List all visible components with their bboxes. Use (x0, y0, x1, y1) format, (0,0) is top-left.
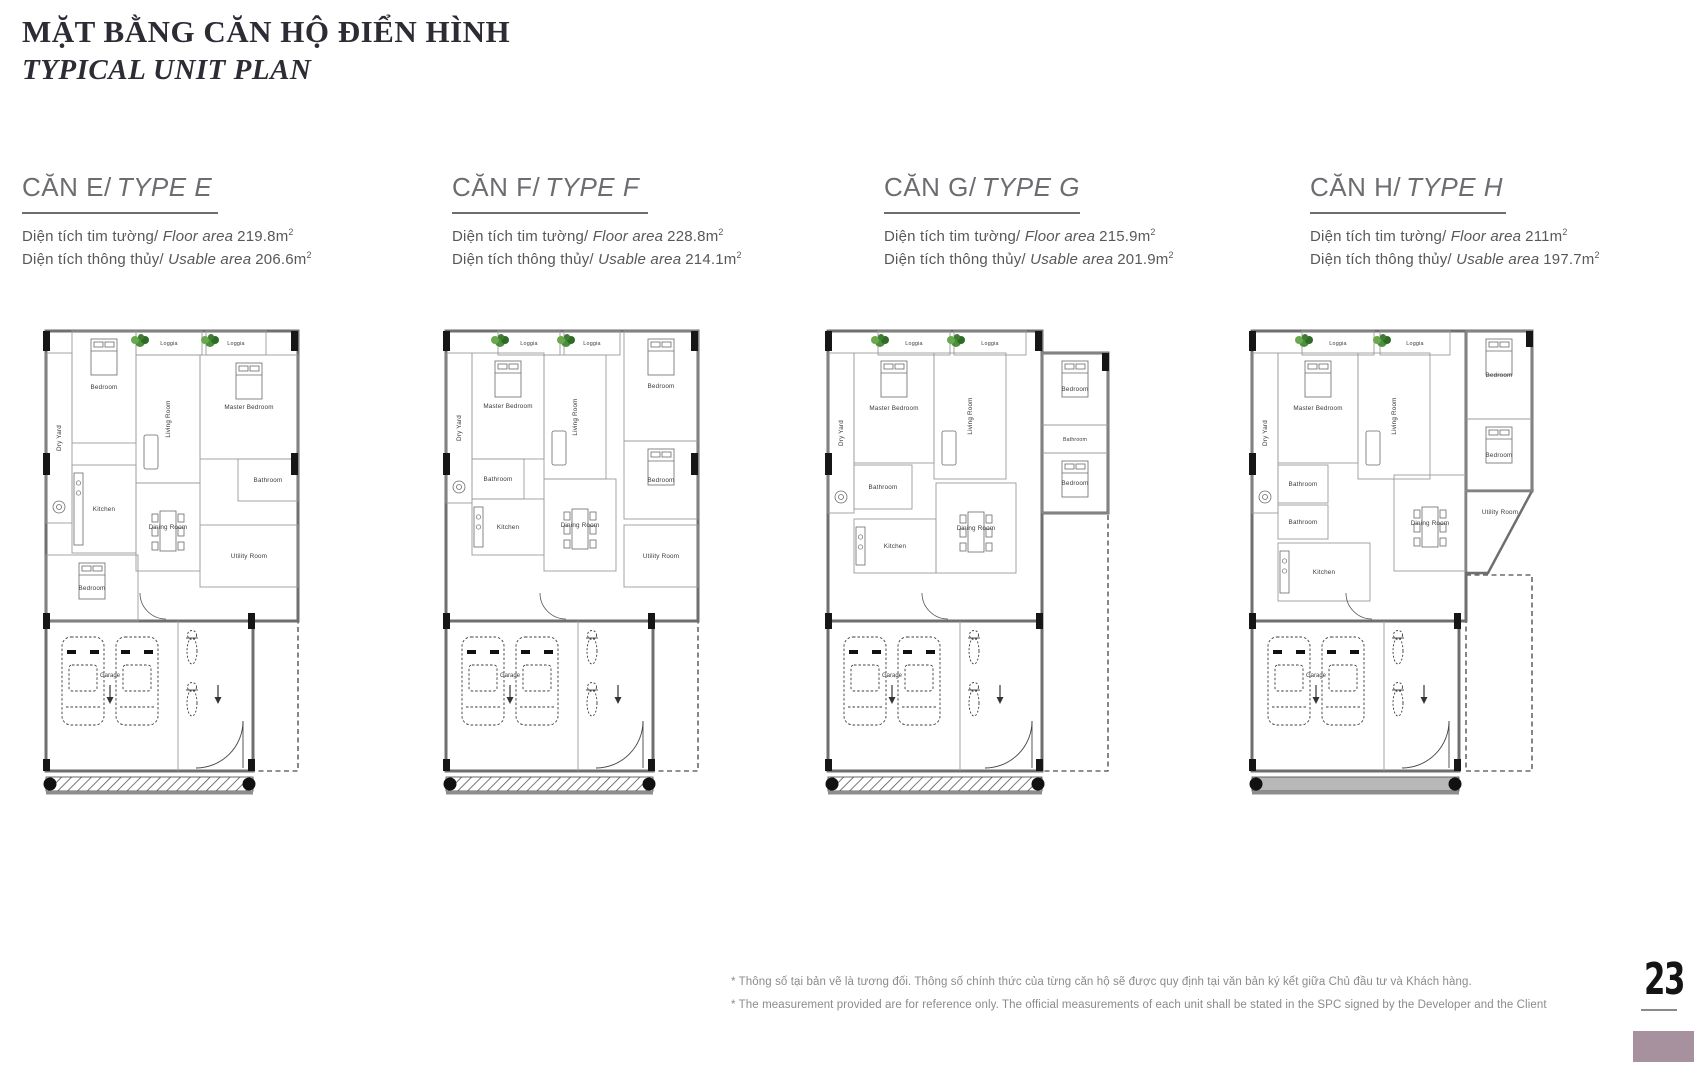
wall-block (691, 331, 698, 351)
room-label-kitchen: Kitchen (93, 506, 116, 513)
room-label-bedroom: Bedroom (1062, 386, 1089, 393)
floor-area-value: 211m (1525, 228, 1562, 245)
floor-area-line: Diện tích tim tường/ Floor area215.9m2 (884, 227, 1224, 245)
section-end-dot (643, 778, 656, 791)
apartment-walls (1466, 331, 1532, 491)
usable-area-value: 201.9m (1117, 251, 1168, 268)
footnote-english: * The measurement provided are for refer… (731, 994, 1547, 1017)
room-label-kitchen: Kitchen (884, 543, 907, 550)
plant-icon (1373, 336, 1381, 344)
apartment-walls (828, 331, 1042, 621)
section-end-dot (444, 778, 457, 791)
unit-title-underline (22, 212, 218, 214)
usable-area-label-vi: Diện tích thông thủy/ (884, 251, 1026, 268)
unit-title-underline (452, 212, 648, 214)
floor-plan-drawing: Dry YardLoggiaLoggiaMaster BedroomLiving… (820, 325, 1120, 795)
unit-name-en: TYPE F (545, 172, 639, 202)
plant-icon (878, 334, 884, 340)
car-headlight (1327, 650, 1336, 654)
apartment-walls (1042, 353, 1108, 513)
room-label-kitchen: Kitchen (497, 524, 520, 531)
wall-block (1249, 453, 1256, 475)
plant-icon (131, 336, 139, 344)
wall-block (291, 453, 298, 475)
plant-icon (1302, 334, 1308, 340)
wall-block (43, 613, 50, 629)
wall-block (1036, 613, 1043, 629)
wall-block (825, 331, 832, 351)
room-label-bedroom: Bedroom (648, 477, 675, 484)
apartment-walls (46, 331, 298, 621)
wall-block (443, 453, 450, 475)
unit-title: CĂN H/TYPE H (1310, 172, 1650, 203)
wall-block (291, 331, 298, 351)
floor-plan-type-g: Dry YardLoggiaLoggiaMaster BedroomLiving… (820, 325, 1120, 800)
garage-walls (46, 621, 253, 771)
usable-area-value: 206.6m (255, 251, 306, 268)
usable-area-value: 214.1m (685, 251, 736, 268)
floor-area-sup: 2 (1150, 227, 1155, 237)
wall-block (825, 759, 832, 771)
floor-area-sup: 2 (1562, 227, 1567, 237)
angled-wall (1466, 491, 1532, 573)
usable-area-sup: 2 (307, 250, 312, 260)
wall-block (443, 331, 450, 351)
car-headlight (90, 650, 99, 654)
room-label-loggia: Loggia (981, 341, 998, 347)
floor-area-line: Diện tích tim tường/ Floor area228.8m2 (452, 227, 792, 245)
section-base-line (828, 791, 1042, 795)
room-label-loggia: Loggia (160, 341, 177, 347)
usable-area-value: 197.7m (1543, 251, 1594, 268)
wall-block (1454, 759, 1461, 771)
plant-icon (564, 334, 570, 340)
room-label-garage: Garage (882, 673, 903, 679)
page-title-vietnamese: MẶT BẰNG CĂN HỘ ĐIỂN HÌNH (22, 14, 510, 50)
wall-block (248, 613, 255, 629)
room-label-garage: Garage (1306, 673, 1327, 679)
section-end-dot (44, 778, 57, 791)
section-end-dot (1250, 778, 1263, 791)
room-label-loggia: Loggia (1329, 341, 1346, 347)
section-hatch-strip (828, 777, 1042, 791)
room-label-dining_room: Dining Room (1411, 520, 1450, 527)
wall-block (43, 331, 50, 351)
wall-block (1454, 613, 1461, 629)
wall-block (1102, 353, 1109, 371)
floor-plan-drawing: Dry YardBedroomLoggiaLoggiaLiving RoomMa… (38, 325, 338, 795)
section-base-line (446, 791, 653, 795)
room-label-living_room: Living Room (165, 400, 172, 437)
footnote: * Thông số tại bản vẽ là tương đối. Thôn… (731, 971, 1547, 1017)
room-label-bathroom: Bathroom (484, 476, 513, 483)
unit-section-type-e: CĂN E/TYPE E Diện tích tim tường/ Floor … (22, 172, 362, 268)
unit-section-type-f: CĂN F/TYPE F Diện tích tim tường/ Floor … (452, 172, 792, 268)
unit-title: CĂN E/TYPE E (22, 172, 362, 203)
room-label-bathroom: Bathroom (254, 477, 283, 484)
room-label-bathroom: Bathroom (1289, 519, 1318, 526)
car-headlight (121, 650, 130, 654)
room-label-bedroom: Bedroom (1062, 480, 1089, 487)
room-label-dry_yard: Dry Yard (1262, 420, 1269, 446)
section-end-dot (1032, 778, 1045, 791)
unit-name-en: TYPE E (117, 172, 212, 202)
floor-area-value: 228.8m (667, 228, 718, 245)
usable-area-label-vi: Diện tích thông thủy/ (22, 251, 164, 268)
plant-icon (498, 334, 504, 340)
room-label-master_bedroom: Master Bedroom (869, 405, 918, 412)
room-label-living_room: Living Room (572, 398, 579, 435)
plant-icon (1380, 334, 1386, 340)
usable-area-line: Diện tích thông thủy/ Usable area201.9m2 (884, 250, 1224, 268)
footnote-vietnamese: * Thông số tại bản vẽ là tương đối. Thôn… (731, 971, 1547, 994)
section-end-dot (826, 778, 839, 791)
room-label-kitchen: Kitchen (1313, 569, 1336, 576)
unit-title-underline (884, 212, 1080, 214)
car-headlight (490, 650, 499, 654)
wall-block (648, 613, 655, 629)
usable-area-sup: 2 (1169, 250, 1174, 260)
room-label-utility_room: Utility Room (1482, 509, 1518, 516)
wall-block (691, 453, 698, 475)
unit-section-type-g: CĂN G/TYPE G Diện tích tim tường/ Floor … (884, 172, 1224, 268)
plant-icon (871, 336, 879, 344)
section-hatch-strip (446, 777, 653, 791)
usable-area-sup: 2 (1595, 250, 1600, 260)
wall-block (1249, 759, 1256, 771)
car-headlight (903, 650, 912, 654)
floor-plan-drawing: Dry YardLoggiaLoggiaMaster BedroomLiving… (1244, 325, 1544, 795)
room-label-bedroom: Bedroom (1486, 372, 1513, 379)
floor-plan-type-e: Dry YardBedroomLoggiaLoggiaLiving RoomMa… (38, 325, 338, 800)
room-label-master_bedroom: Master Bedroom (1293, 405, 1342, 412)
accent-corner-rectangle (1633, 1031, 1694, 1062)
car-headlight (1273, 650, 1282, 654)
wall-block (443, 613, 450, 629)
floor-area-label-vi: Diện tích tim tường/ (1310, 228, 1446, 245)
floor-area-label-vi: Diện tích tim tường/ (22, 228, 158, 245)
plant-icon (954, 334, 960, 340)
floor-area-label-en: Floor area (1451, 228, 1521, 245)
usable-area-sup: 2 (737, 250, 742, 260)
floor-area-line: Diện tích tim tường/ Floor area219.8m2 (22, 227, 362, 245)
car-headlight (926, 650, 935, 654)
unit-name-vi: CĂN H/ (1310, 172, 1401, 202)
room-label-master_bedroom: Master Bedroom (483, 403, 532, 410)
room-label-loggia: Loggia (905, 341, 922, 347)
wall-block (825, 613, 832, 629)
room-label-dining_room: Dining Room (561, 522, 600, 529)
garage-walls (446, 621, 653, 771)
usable-area-label-en: Usable area (168, 251, 251, 268)
page-number: 23 (1642, 954, 1687, 1005)
page-title-english: TYPICAL UNIT PLAN (22, 54, 311, 87)
section-end-dot (243, 778, 256, 791)
floor-area-value: 219.8m (237, 228, 288, 245)
usable-area-label-en: Usable area (598, 251, 681, 268)
section-base-line (1252, 791, 1459, 795)
wall-block (443, 759, 450, 771)
floor-area-label-vi: Diện tích tim tường/ (452, 228, 588, 245)
unit-title: CĂN F/TYPE F (452, 172, 792, 203)
room-label-loggia: Loggia (520, 341, 537, 347)
floor-plan-drawing: Dry YardLoggiaLoggiaBedroomMaster Bedroo… (438, 325, 738, 795)
wall-block (1036, 759, 1043, 771)
usable-area-label-vi: Diện tích thông thủy/ (452, 251, 594, 268)
room-label-dry_yard: Dry Yard (456, 415, 463, 441)
room-label-garage: Garage (100, 673, 121, 679)
floor-plan-type-h: Dry YardLoggiaLoggiaMaster BedroomLiving… (1244, 325, 1544, 800)
garage-walls (1252, 621, 1459, 771)
unit-name-vi: CĂN F/ (452, 172, 540, 202)
unit-title: CĂN G/TYPE G (884, 172, 1224, 203)
floor-plan-type-f: Dry YardLoggiaLoggiaBedroomMaster Bedroo… (438, 325, 738, 800)
wall-block (1249, 613, 1256, 629)
car-headlight (849, 650, 858, 654)
plant-icon (557, 336, 565, 344)
car-headlight (67, 650, 76, 654)
floor-area-value: 215.9m (1099, 228, 1150, 245)
car-headlight (1350, 650, 1359, 654)
wall-block (43, 453, 50, 475)
plant-icon (1295, 336, 1303, 344)
room-label-loggia: Loggia (583, 341, 600, 347)
car-headlight (544, 650, 553, 654)
usable-area-label-vi: Diện tích thông thủy/ (1310, 251, 1452, 268)
floor-area-sup: 2 (288, 227, 293, 237)
room-label-utility_room: Utility Room (231, 553, 267, 560)
room-label-dry_yard: Dry Yard (838, 420, 845, 446)
floor-area-label-en: Floor area (1025, 228, 1095, 245)
page-number-underline (1641, 1009, 1677, 1011)
section-hatch-strip (46, 777, 253, 791)
usable-area-label-en: Usable area (1456, 251, 1539, 268)
room-label-bathroom: Bathroom (1289, 481, 1318, 488)
car-headlight (872, 650, 881, 654)
usable-area-label-en: Usable area (1030, 251, 1113, 268)
wall-block (1035, 331, 1042, 351)
unit-name-vi: CĂN G/ (884, 172, 977, 202)
room-label-bathroom: Bathroom (1063, 437, 1087, 443)
car-headlight (467, 650, 476, 654)
floor-area-line: Diện tích tim tường/ Floor area211m2 (1310, 227, 1650, 245)
floor-area-sup: 2 (718, 227, 723, 237)
plant-icon (491, 336, 499, 344)
room-label-living_room: Living Room (1391, 397, 1398, 434)
unit-name-en: TYPE H (1406, 172, 1503, 202)
section-hatch-strip (1252, 777, 1459, 791)
room-label-bedroom: Bedroom (1486, 452, 1513, 459)
section-end-dot (1449, 778, 1462, 791)
car-headlight (144, 650, 153, 654)
usable-area-line: Diện tích thông thủy/ Usable area206.6m2 (22, 250, 362, 268)
wall-block (43, 759, 50, 771)
room-label-bedroom: Bedroom (79, 585, 106, 592)
room-label-living_room: Living Room (967, 397, 974, 434)
room-label-garage: Garage (500, 673, 521, 679)
car-headlight (1296, 650, 1305, 654)
plant-icon (138, 334, 144, 340)
room-label-dining_room: Dining Room (957, 525, 996, 532)
wall-block (1249, 331, 1256, 351)
apartment-walls (1252, 331, 1466, 621)
room-label-loggia: Loggia (1406, 341, 1423, 347)
room-label-bathroom: Bathroom (869, 484, 898, 491)
dashed-extension-area (1042, 513, 1108, 771)
plant-icon (208, 334, 214, 340)
section-base-line (46, 791, 253, 795)
unit-name-vi: CĂN E/ (22, 172, 112, 202)
usable-area-line: Diện tích thông thủy/ Usable area197.7m2 (1310, 250, 1650, 268)
unit-name-en: TYPE G (982, 172, 1080, 202)
floor-area-label-vi: Diện tích tim tường/ (884, 228, 1020, 245)
wall-block (648, 759, 655, 771)
room-label-loggia: Loggia (227, 341, 244, 347)
floor-area-label-en: Floor area (593, 228, 663, 245)
unit-section-type-h: CĂN H/TYPE H Diện tích tim tường/ Floor … (1310, 172, 1650, 268)
room-label-dry_yard: Dry Yard (56, 425, 63, 451)
usable-area-line: Diện tích thông thủy/ Usable area214.1m2 (452, 250, 792, 268)
room-label-bedroom: Bedroom (91, 384, 118, 391)
room-label-dining_room: Dining Room (149, 524, 188, 531)
room-label-bedroom: Bedroom (648, 383, 675, 390)
dashed-extension-area (1466, 575, 1532, 771)
car-headlight (521, 650, 530, 654)
plant-icon (201, 336, 209, 344)
plant-icon (947, 336, 955, 344)
wall-block (1526, 331, 1533, 347)
room-label-utility_room: Utility Room (643, 553, 679, 560)
unit-title-underline (1310, 212, 1506, 214)
floor-area-label-en: Floor area (163, 228, 233, 245)
wall-block (248, 759, 255, 771)
wall-block (825, 453, 832, 475)
garage-walls (828, 621, 1042, 771)
room-label-master_bedroom: Master Bedroom (224, 404, 273, 411)
